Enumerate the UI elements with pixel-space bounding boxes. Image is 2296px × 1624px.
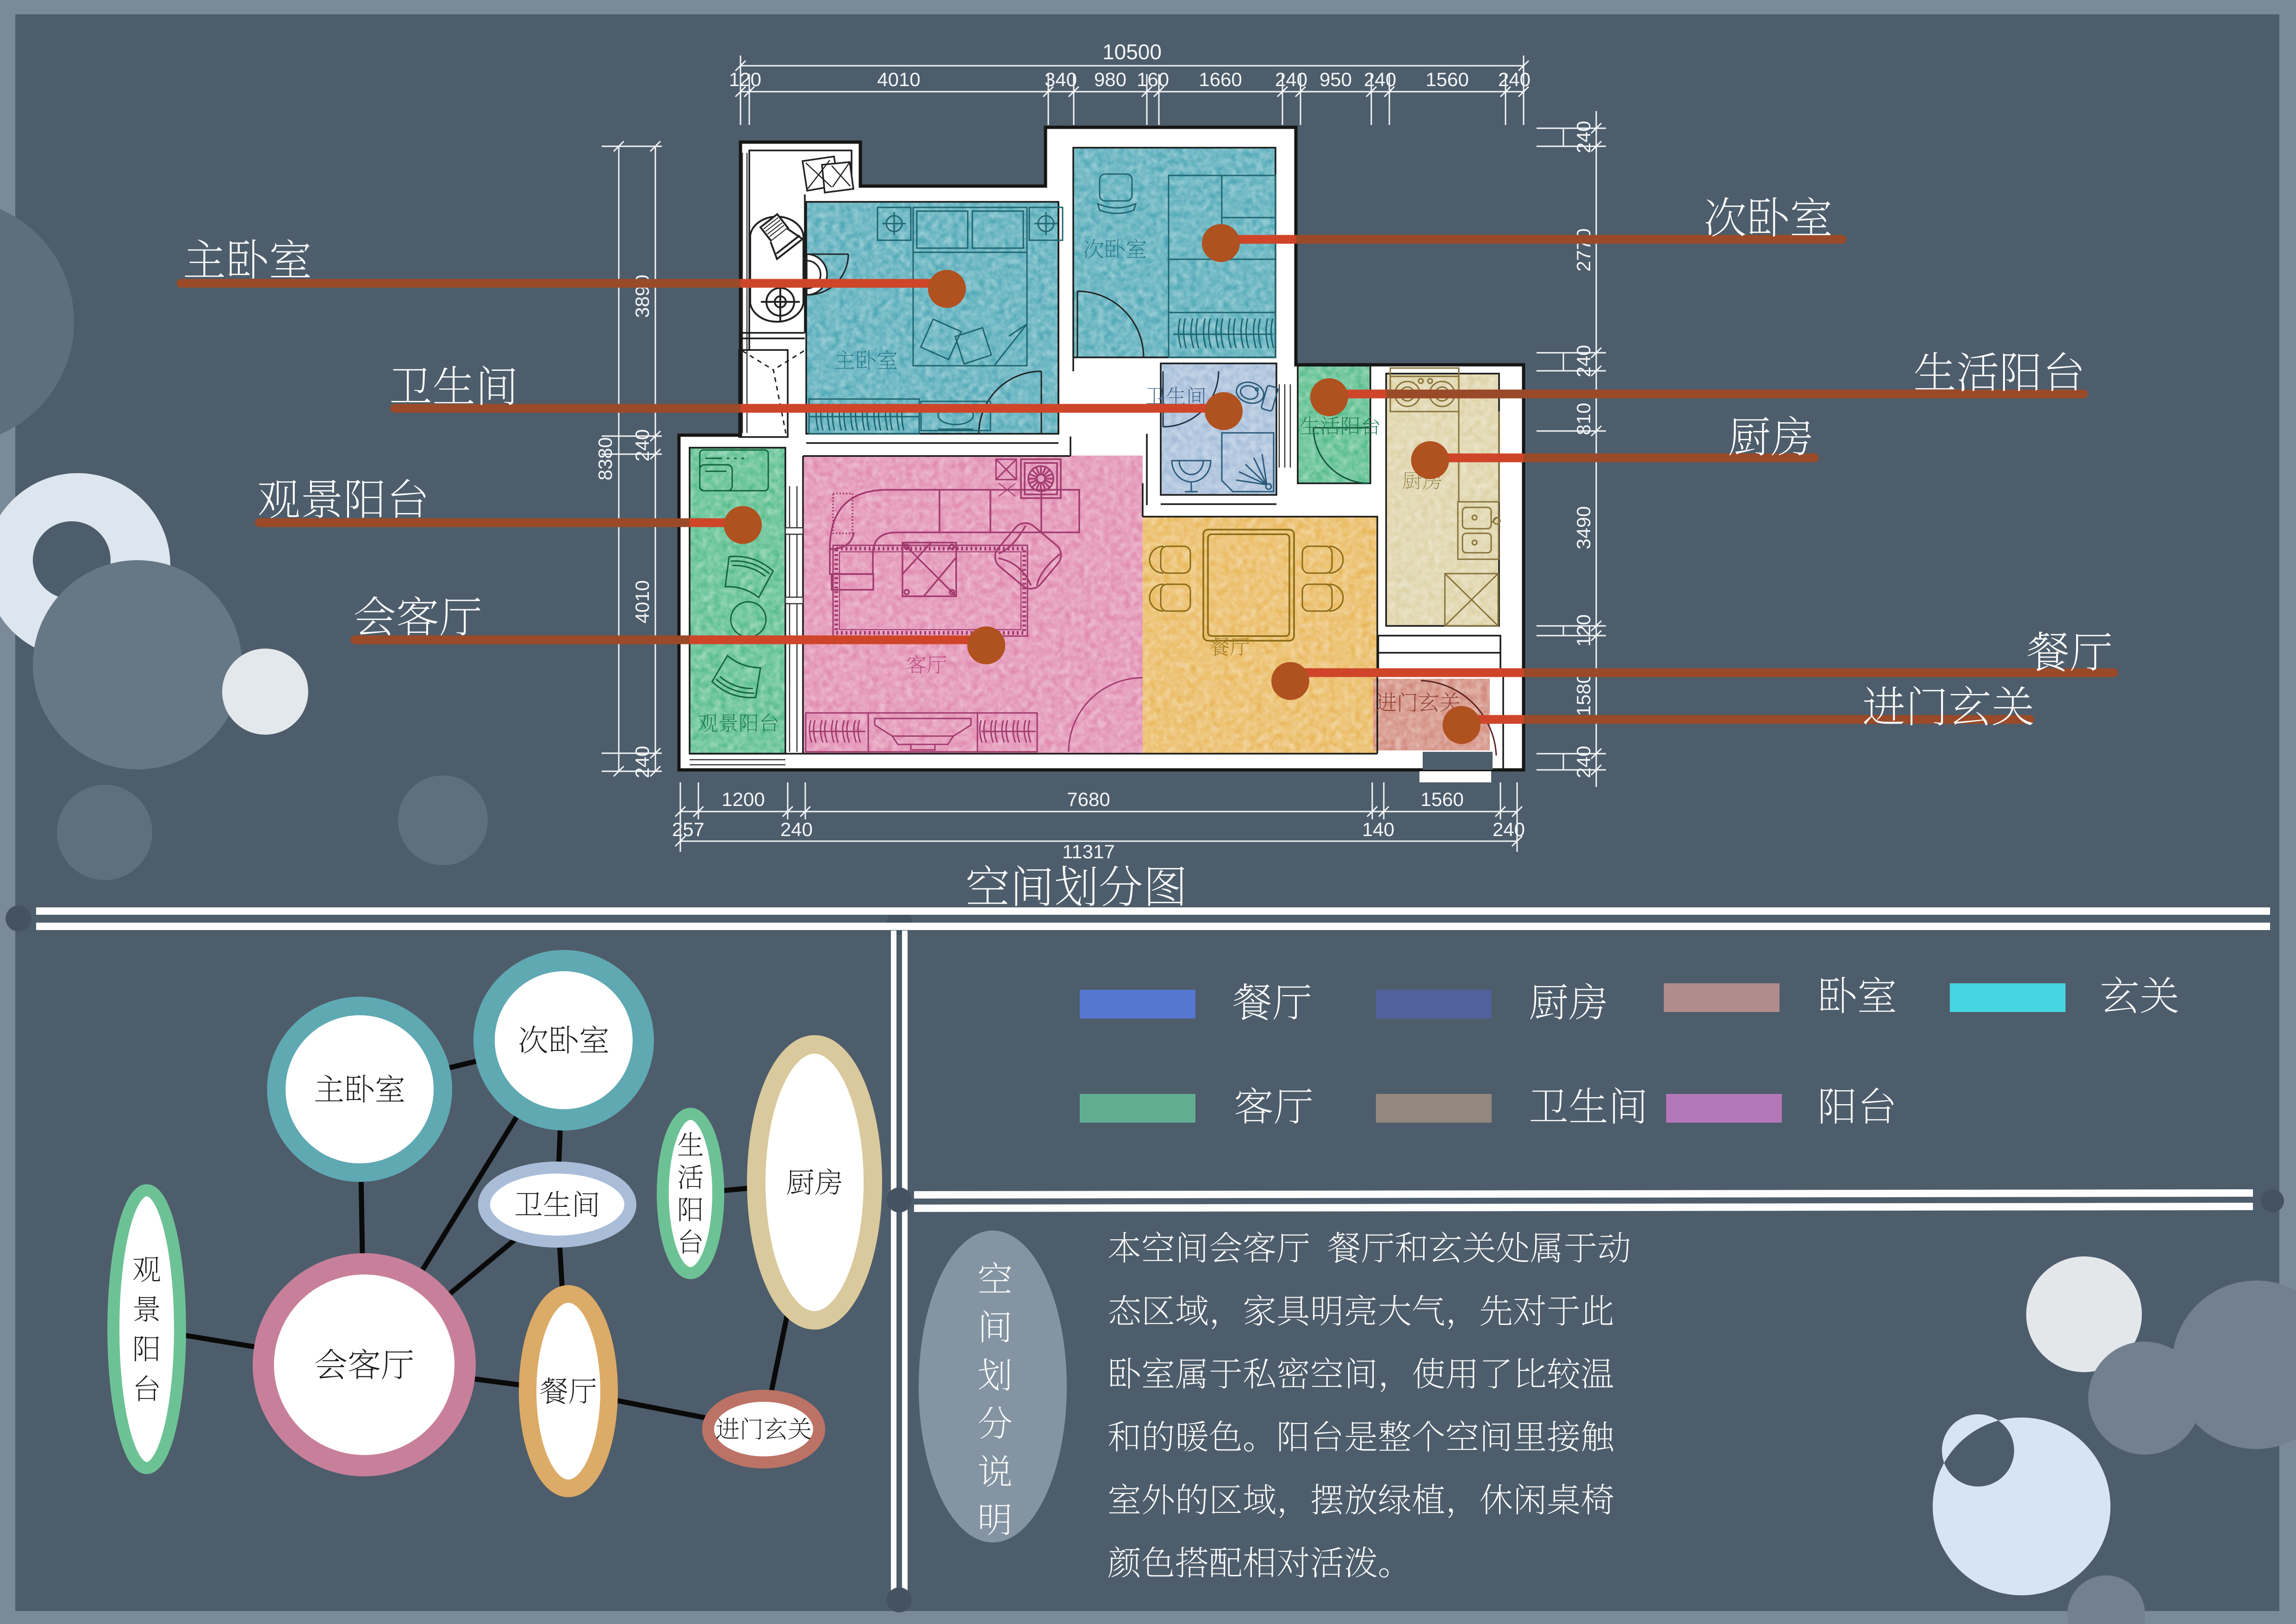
svg-text:7680: 7680: [1067, 788, 1110, 810]
svg-text:120: 120: [1573, 614, 1594, 647]
svg-text:1660: 1660: [1199, 69, 1242, 90]
svg-text:257: 257: [672, 818, 704, 840]
svg-text:240: 240: [1573, 121, 1594, 153]
svg-text:240: 240: [1275, 69, 1307, 90]
svg-text:240: 240: [780, 818, 813, 840]
svg-text:11317: 11317: [1062, 841, 1115, 862]
svg-text:140: 140: [1362, 818, 1394, 840]
svg-text:240: 240: [1364, 69, 1396, 90]
svg-text:4010: 4010: [631, 580, 653, 623]
svg-text:810: 810: [1573, 403, 1594, 435]
svg-text:3490: 3490: [1573, 506, 1594, 549]
svg-text:1200: 1200: [722, 788, 765, 810]
svg-text:240: 240: [631, 746, 653, 778]
svg-text:1580: 1580: [1573, 673, 1594, 716]
svg-text:240: 240: [1573, 746, 1594, 778]
svg-text:980: 980: [1094, 69, 1126, 90]
svg-text:950: 950: [1319, 69, 1352, 90]
svg-text:340: 340: [1045, 69, 1077, 90]
svg-text:1560: 1560: [1420, 788, 1463, 810]
svg-text:10500: 10500: [1102, 40, 1162, 64]
svg-text:8380: 8380: [594, 437, 616, 480]
svg-text:1560: 1560: [1425, 69, 1468, 90]
svg-text:120: 120: [729, 69, 761, 90]
svg-text:4010: 4010: [877, 69, 920, 90]
svg-text:2770: 2770: [1573, 228, 1594, 271]
svg-text:240: 240: [1573, 345, 1594, 377]
svg-text:240: 240: [1493, 818, 1525, 840]
svg-text:240: 240: [631, 429, 653, 462]
svg-text:240: 240: [1498, 69, 1531, 90]
svg-text:160: 160: [1137, 69, 1169, 90]
